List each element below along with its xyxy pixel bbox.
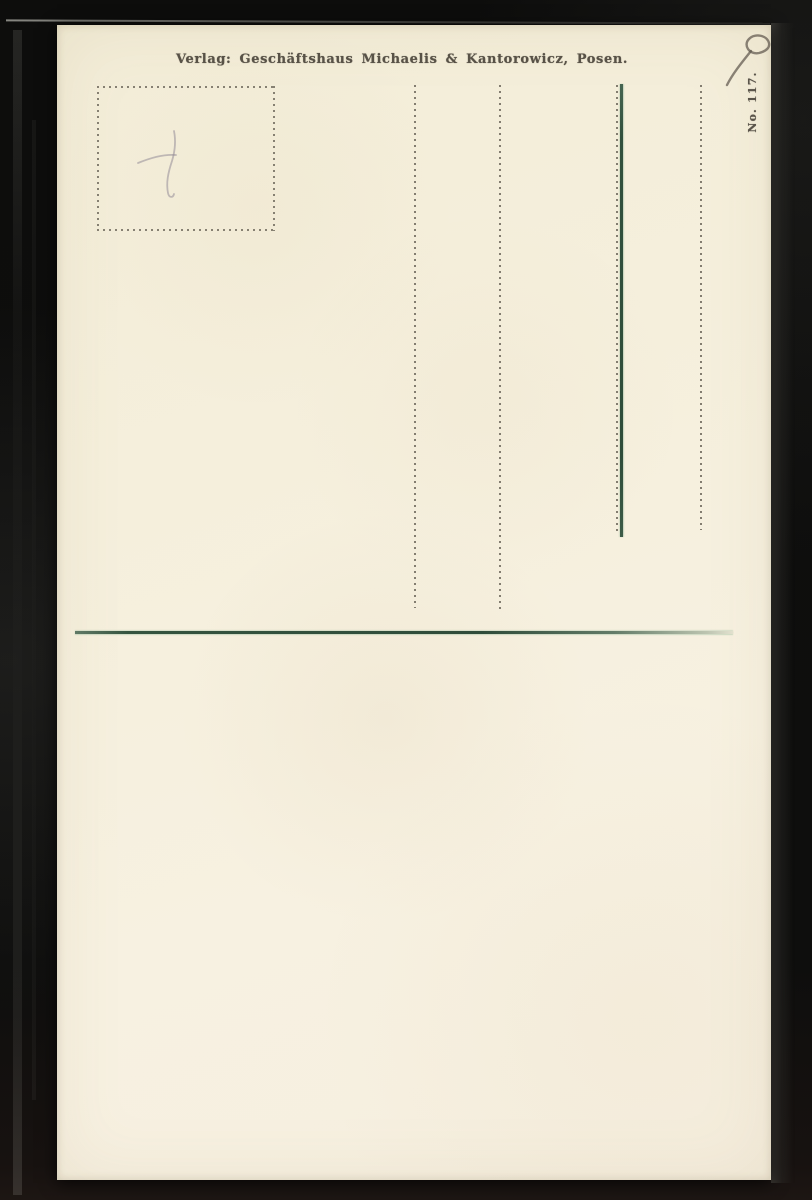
address-rule-dotted-2 [499,85,501,610]
backdrop-streak-left-2 [32,120,36,1100]
postcard-back: Verlag: Geschäftshaus Michaelis & Kantor… [57,25,771,1180]
publisher-imprint: Verlag: Geschäftshaus Michaelis & Kantor… [57,52,771,67]
divider-rule-horizontal [75,631,733,634]
backdrop-streak-left [13,30,22,1195]
pencil-scribble-icon [719,31,775,91]
photograph-backdrop: Verlag: Geschäftshaus Michaelis & Kantor… [0,0,812,1200]
backdrop-band-right [771,23,795,1183]
pencil-mark-icon [128,117,204,209]
divider-rule-vertical [620,84,623,537]
address-rule-dotted-3 [616,85,618,535]
backdrop-edge-highlight [6,19,770,24]
address-rule-dotted-4 [700,85,702,530]
stamp-box [97,86,275,231]
address-rule-dotted-1 [414,85,416,608]
